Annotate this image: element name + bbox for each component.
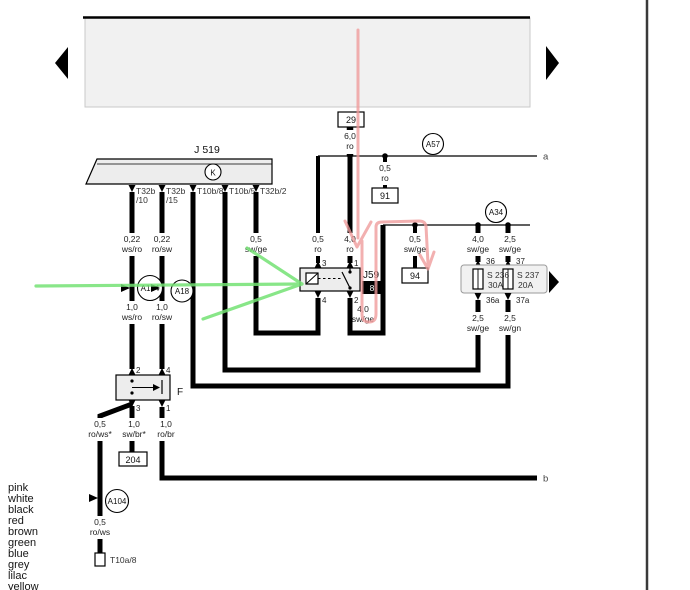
relay-slot-number: 8 [370, 283, 375, 293]
pin-arrow-icon [315, 291, 322, 298]
wire-gauge: 0,5 [379, 163, 391, 173]
relay-pin-label: 2 [354, 296, 359, 305]
pin-arrow-icon [347, 291, 354, 298]
ref-pointer-arrow-icon [89, 494, 98, 502]
relay-pin-label: 1 [354, 259, 359, 268]
wire-f-pin1-b-line [162, 407, 537, 478]
wire-color-code: ws/ro [121, 312, 143, 322]
continuation-arrow-fuse-icon [549, 271, 559, 293]
terminal-label: T10b/8 [197, 186, 224, 196]
terminal-arrow-icon [505, 293, 512, 300]
fuse-rating: 20A [518, 280, 533, 290]
wire-gauge: 4,0 [472, 234, 484, 244]
wiring-diagram-page: J 519 K T32b /10 T32b /15 T10b/8 T10b/5 … [0, 0, 690, 590]
wire-gauge: 1,0 [156, 302, 168, 312]
connector-204-label: 204 [125, 455, 140, 465]
wire-gauge: 2,5 [504, 313, 516, 323]
fuse-name: S 236 [487, 270, 509, 280]
wire-gauge: 0,5 [94, 419, 106, 429]
pin-arrow-icon [159, 368, 166, 375]
line-marker-b: b [543, 474, 548, 485]
switch-pin-label: 1 [166, 404, 171, 413]
wire-gauge: 0,5 [409, 234, 421, 244]
wire-gauge: 0,22 [154, 234, 171, 244]
ref-a18-label: A18 [175, 287, 190, 296]
wire-color-code: sw/ge [467, 323, 489, 333]
pin-arrow-icon [190, 185, 197, 192]
wire-color-code: ws/ro [121, 244, 143, 254]
wire-color-code: ro [314, 244, 322, 254]
wire-color-code: ro/ws [90, 527, 110, 537]
pin-arrow-icon [129, 368, 136, 375]
wire-color-code: ro [346, 244, 354, 254]
relay-j59: 3 1 4 2 J59 8 [300, 259, 382, 305]
connector-91-label: 91 [380, 191, 390, 201]
ref-a34-label: A34 [489, 208, 504, 217]
wire-gauge: 6,0 [344, 131, 356, 141]
terminal-label: /15 [166, 195, 178, 205]
wire-color-code: sw/ge [499, 244, 521, 254]
color-legend: pink white black red brown green blue gr… [7, 482, 39, 590]
wire-color-code: ro/br [157, 429, 175, 439]
wire-gauge: 1,0 [126, 302, 138, 312]
terminal-label: /10 [136, 195, 148, 205]
switch-contact-dot [130, 379, 133, 382]
ground-terminal-icon [95, 553, 105, 566]
pin-arrow-icon [159, 185, 166, 192]
wire-color-code: ro/ws* [88, 429, 112, 439]
connector-29-label: 29 [346, 115, 356, 125]
k-badge-label: K [210, 169, 216, 178]
ref-a104-label: A104 [108, 497, 127, 506]
connector-94-label: 94 [410, 271, 420, 281]
switch-pin-label: 4 [166, 366, 171, 375]
wire-gauge: 2,5 [472, 313, 484, 323]
switch-contact-dot [130, 391, 133, 394]
fuse-panel: 36 37 S 236 30A S 237 20A 36a 37a [461, 257, 559, 305]
harness-band-rect [85, 18, 530, 107]
fuse-rating: 30A [488, 280, 503, 290]
terminal-label: T32b/2 [260, 186, 287, 196]
relay-contact-dot [348, 270, 351, 273]
relay-pin-label: 3 [322, 259, 327, 268]
harness-band [55, 18, 559, 108]
continuation-arrow-left-icon [55, 47, 68, 79]
ref-a57-label: A57 [426, 140, 441, 149]
junction-dot [382, 153, 388, 159]
wire-color-code: sw/ge [467, 244, 489, 254]
wire-gauge: 0,22 [124, 234, 141, 244]
junction-dot [347, 153, 353, 159]
legend-item: yellow [8, 581, 39, 590]
switch-pin-label: 2 [136, 366, 141, 375]
switch-pin-label: 3 [136, 404, 141, 413]
wiring-diagram: J 519 K T32b /10 T32b /15 T10b/8 T10b/5 … [0, 0, 690, 590]
control-unit-box [86, 159, 272, 184]
pin-arrow-icon [129, 185, 136, 192]
continuation-arrow-right-icon [546, 46, 559, 80]
relay-contact-dot [348, 286, 351, 289]
wire-color-code: sw/br* [122, 429, 146, 439]
wire-relay-pin4-run [256, 192, 318, 333]
wire-color-code: sw/gn [499, 323, 521, 333]
wire-gauge: 2,5 [504, 234, 516, 244]
annotation-green-shaft [36, 284, 302, 286]
wire-gauge: 1,0 [128, 419, 140, 429]
pin-arrow-icon [315, 261, 322, 268]
ground-terminal: T10a/8 [95, 553, 137, 566]
fuse-name: S 237 [517, 270, 539, 280]
wire-gauge: 1,0 [160, 419, 172, 429]
terminal-arrow-icon [475, 293, 482, 300]
wire-color-code: ro [381, 173, 389, 183]
line-marker-a: a [543, 152, 549, 163]
wire-color-code: ro/sw [152, 244, 173, 254]
relay-pin-label: 4 [322, 296, 327, 305]
control-unit-label: J 519 [194, 144, 220, 156]
wire-gauge: 0,5 [312, 234, 324, 244]
wire-color-code: sw/ge [404, 244, 426, 254]
switch-designation: F [177, 387, 183, 398]
pin-arrow-icon [159, 400, 166, 407]
wire-color-code: ro/sw [152, 312, 173, 322]
ground-terminal-label: T10a/8 [110, 555, 137, 565]
fuse-terminal-bottom: 36a [486, 296, 500, 305]
wire-gauge: 0,5 [250, 234, 262, 244]
wire-color-code: ro [346, 141, 354, 151]
wire-gauge: 0,5 [94, 517, 106, 527]
fuse-terminal-bottom: 37a [516, 296, 530, 305]
terminal-label: T10b/5 [229, 186, 256, 196]
